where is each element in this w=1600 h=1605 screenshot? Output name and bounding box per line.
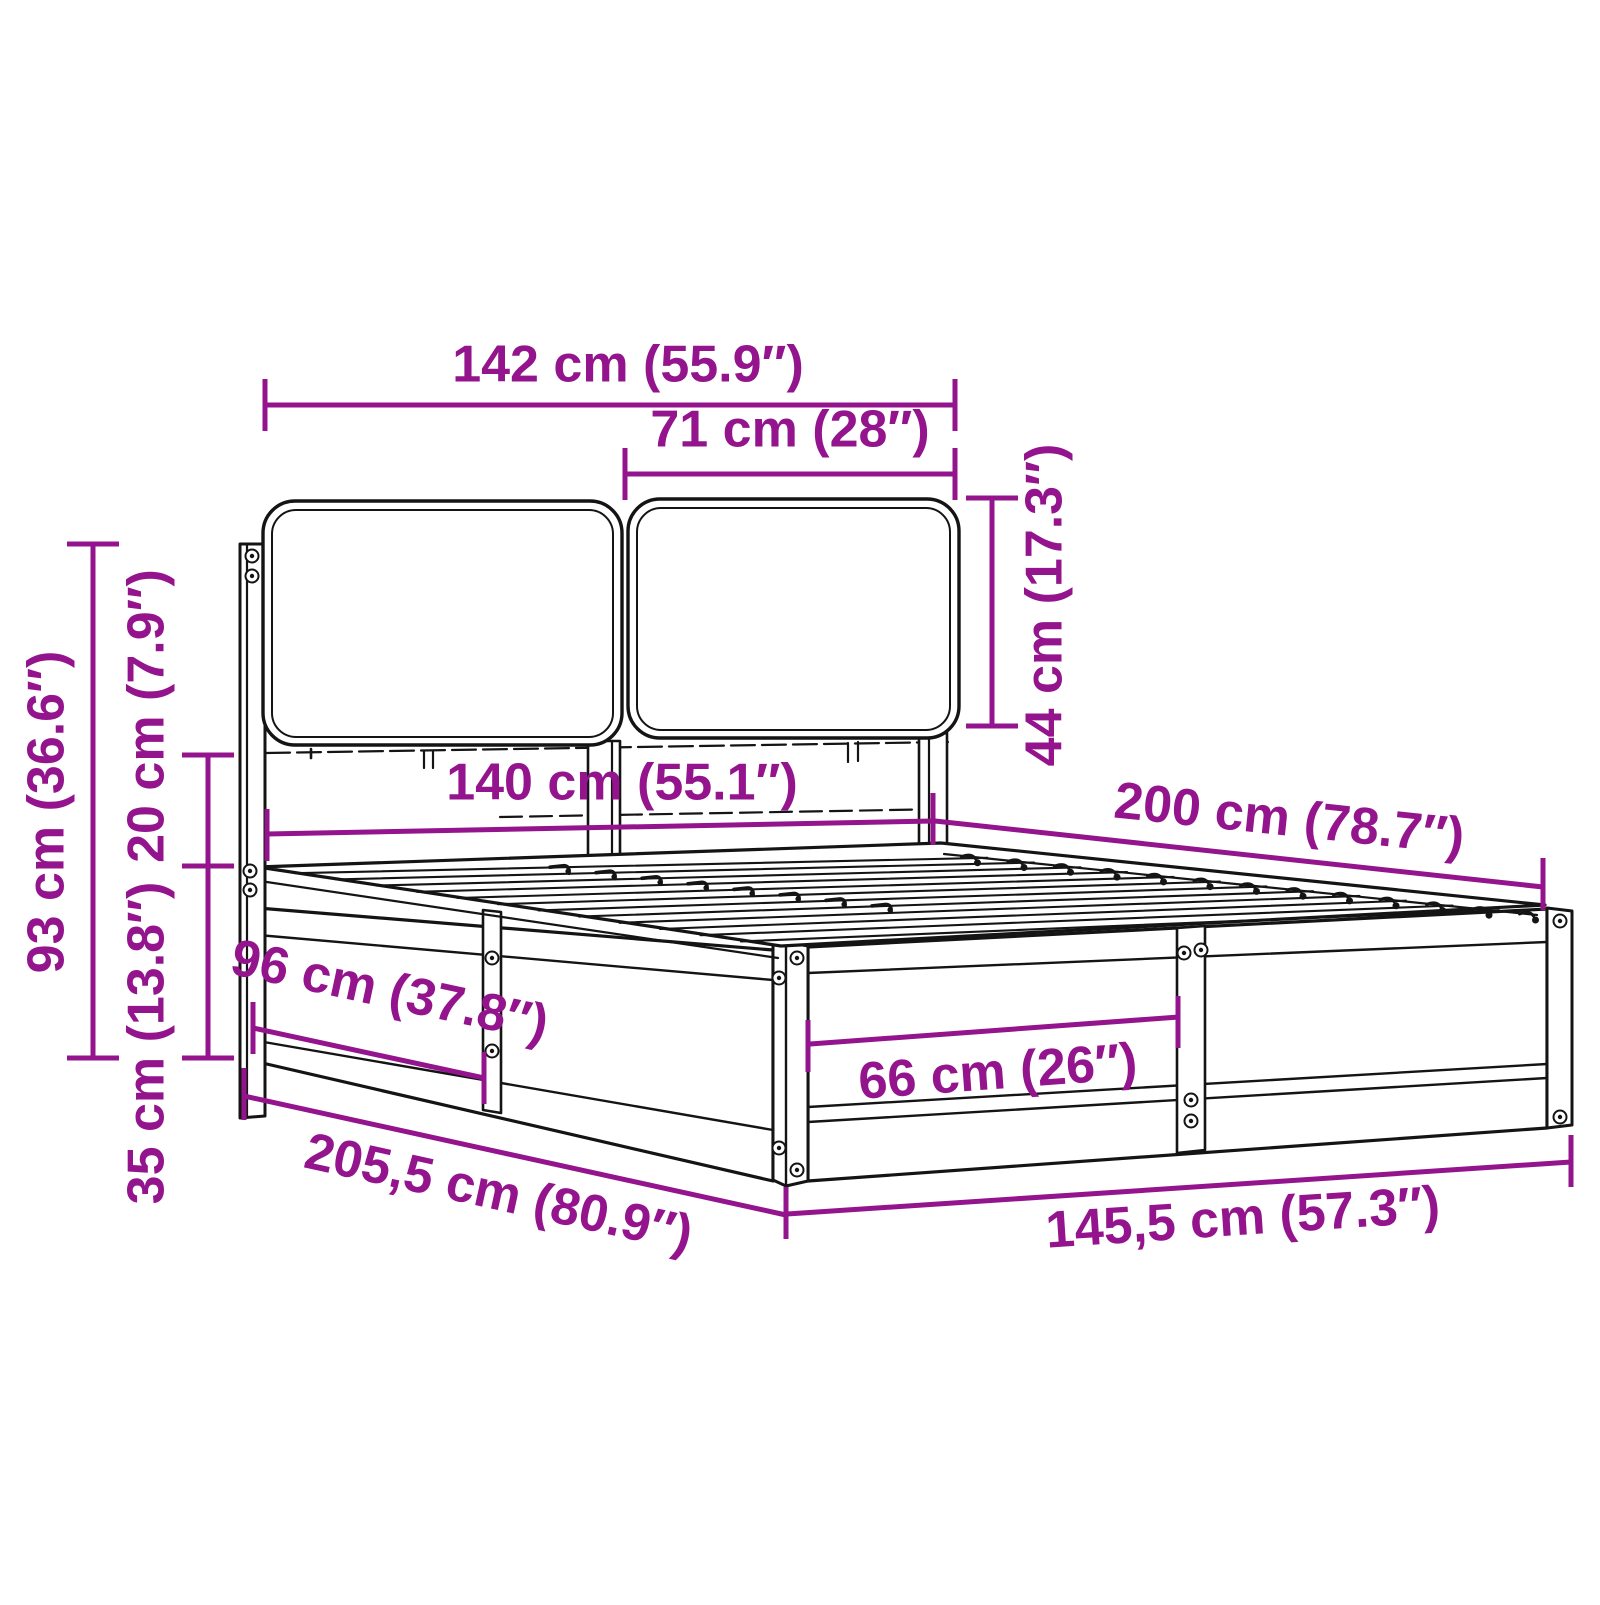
svg-text:71 cm (28″): 71 cm (28″) xyxy=(650,401,929,459)
svg-text:44 cm (17.3″): 44 cm (17.3″) xyxy=(1016,444,1074,767)
svg-text:93 cm (36.6″): 93 cm (36.6″) xyxy=(18,651,76,974)
svg-text:142 cm (55.9″): 142 cm (55.9″) xyxy=(452,336,804,394)
svg-text:20 cm (7.9″): 20 cm (7.9″) xyxy=(118,569,176,863)
svg-text:35 cm (13.8″): 35 cm (13.8″) xyxy=(118,882,176,1205)
svg-text:140 cm (55.1″): 140 cm (55.1″) xyxy=(446,754,798,812)
